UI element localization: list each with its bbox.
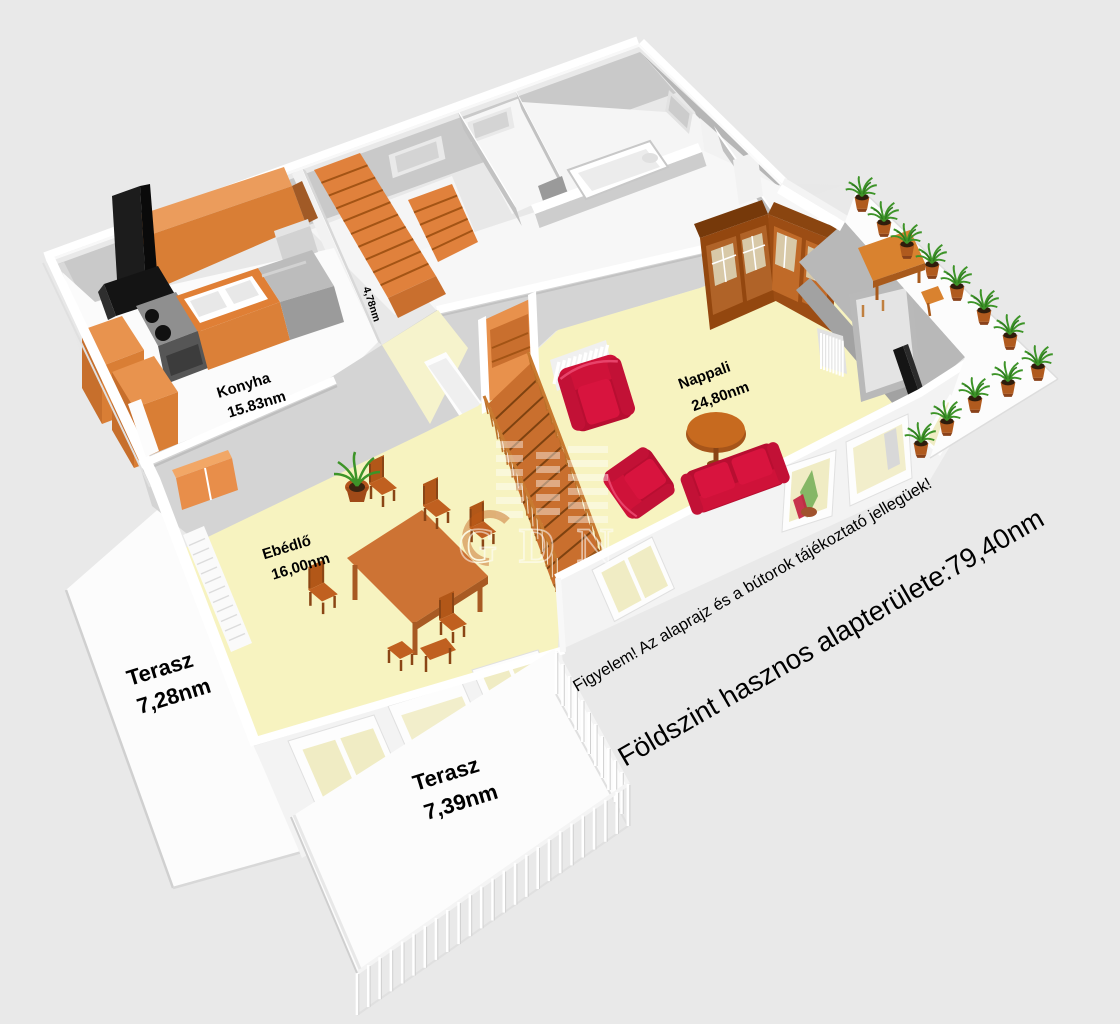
svg-text:GDN: GDN bbox=[458, 517, 635, 573]
